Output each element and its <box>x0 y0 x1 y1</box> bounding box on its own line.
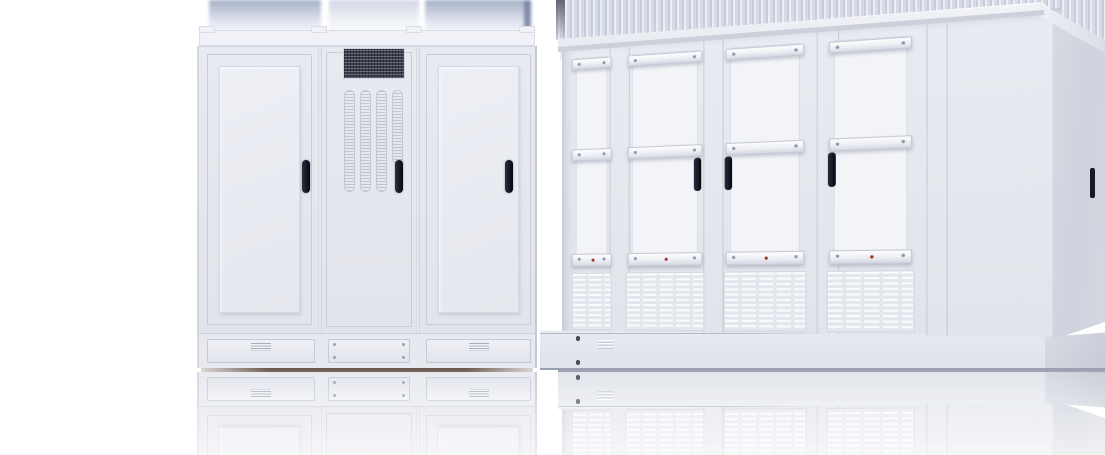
louver-panel <box>827 270 915 333</box>
indicator-dot <box>665 258 668 261</box>
louver-cluster <box>469 389 489 397</box>
door-seam <box>722 406 723 455</box>
slat-window-2 <box>632 50 698 266</box>
plinth-side-shading <box>1045 370 1105 416</box>
louver-plate <box>426 377 531 401</box>
louver-cluster <box>251 389 271 397</box>
plinth-vent-row <box>598 339 1019 349</box>
louver-panel <box>724 271 807 332</box>
plinth-vent <box>598 392 614 401</box>
cabinet-body <box>197 407 537 455</box>
background-smear-left <box>205 0 537 34</box>
door-stile <box>416 407 420 455</box>
louver-cluster <box>469 389 489 397</box>
louver-panel <box>572 273 612 331</box>
cabinet-front-face <box>562 402 1061 455</box>
plinth-vent <box>598 392 614 401</box>
plinth-vent <box>598 392 614 401</box>
screw <box>333 356 336 359</box>
louver-panel <box>827 407 915 455</box>
air-intake-mesh-grille <box>343 48 405 79</box>
left-door-panel <box>219 66 300 313</box>
louver-cluster <box>469 343 489 351</box>
base-vent-band <box>197 372 537 407</box>
cap-tab <box>199 26 215 33</box>
front-door-handle <box>828 152 836 187</box>
window-rail-bottom <box>829 249 912 264</box>
product-render-scene <box>0 0 1105 455</box>
door-stile <box>416 46 420 333</box>
vent-slot <box>344 90 355 192</box>
louver-cluster <box>469 389 489 397</box>
screw <box>402 394 405 397</box>
window-rail-bottom <box>628 252 703 266</box>
slat-window-3 <box>730 43 800 264</box>
louver-cluster <box>469 389 489 397</box>
cabinet-side-panel <box>1047 16 1105 340</box>
louver-cluster-grid <box>210 380 312 398</box>
screw <box>402 356 405 359</box>
plinth-vent <box>598 392 614 401</box>
door-seam <box>926 404 927 455</box>
louver-plate <box>207 377 315 401</box>
vent-slot <box>376 90 387 192</box>
left-cabinet-reflection <box>197 370 537 455</box>
right-door-handle <box>505 160 513 193</box>
window-rail-top <box>572 57 612 71</box>
louver-plate <box>207 339 315 363</box>
ground-contact-line <box>201 370 533 372</box>
door-seam <box>817 27 818 336</box>
louver-panel <box>724 408 807 455</box>
door-seam <box>947 404 948 455</box>
cap-tab <box>311 26 327 33</box>
slat-group <box>581 63 603 259</box>
door-seam <box>838 405 839 455</box>
plinth-seam <box>540 406 1046 407</box>
indicator-dot <box>870 255 873 258</box>
window-rail-bottom <box>572 253 612 267</box>
front-door-handle <box>725 156 732 190</box>
center-column-groove <box>326 413 412 455</box>
plinth-latch <box>576 399 580 404</box>
front-door-handle <box>694 158 701 191</box>
plinth-ground-line <box>540 368 1105 370</box>
door-seam <box>703 406 704 455</box>
vent-slot <box>360 90 371 192</box>
door-stile <box>318 407 322 455</box>
plinth-latch <box>576 360 580 365</box>
cap-tab <box>406 26 422 33</box>
window-rail-bottom <box>726 251 805 266</box>
louver-panel <box>572 410 612 455</box>
plinth-vent <box>598 392 614 401</box>
cabinet-top-cap <box>199 30 535 46</box>
window-rail-middle <box>572 148 612 162</box>
plinth-ground-line <box>540 370 1105 372</box>
door-seam <box>629 406 630 455</box>
left-door-groove <box>207 415 312 455</box>
cap-tab <box>519 26 535 33</box>
louver-panel <box>626 409 705 455</box>
cabinet-plinth <box>540 370 1105 416</box>
side-door-handle <box>1090 168 1095 198</box>
louver-panel <box>626 272 705 331</box>
plinth-vent <box>598 340 614 349</box>
louver-cluster <box>251 389 271 397</box>
right-cabinet-reflection <box>558 370 1105 455</box>
louver-cluster-grid <box>429 380 528 398</box>
door-seam <box>926 19 927 336</box>
louver-cluster <box>251 389 271 397</box>
smear-block <box>209 0 321 34</box>
louver-cluster <box>469 389 489 397</box>
door-stile <box>318 46 322 333</box>
left-door-panel <box>219 427 300 455</box>
louver-plate <box>426 339 531 363</box>
louver-cluster-grid <box>210 342 312 360</box>
louver-cluster <box>251 389 271 397</box>
right-door-panel <box>438 427 519 455</box>
screw <box>402 343 405 346</box>
center-door-handle <box>395 160 403 193</box>
ground-contact-line <box>201 368 533 370</box>
indicator-dot <box>765 257 768 260</box>
louver-cluster <box>251 389 271 397</box>
vent-slot <box>392 90 403 164</box>
left-door-handle <box>302 160 310 193</box>
louver-cluster-grid <box>429 342 528 360</box>
louver-cluster <box>469 389 489 397</box>
plinth-latch <box>576 375 580 380</box>
louver-cluster <box>251 389 271 397</box>
screw <box>402 381 405 384</box>
plinth-latch <box>576 336 580 341</box>
louver-cluster <box>469 389 489 397</box>
cover-plate <box>328 377 410 401</box>
left-cabinet <box>197 30 537 370</box>
louver-cluster <box>251 389 271 397</box>
louver-cluster <box>251 343 271 351</box>
right-cabinet <box>558 2 1105 370</box>
cabinet-body <box>197 46 537 333</box>
indicator-dot <box>592 259 595 262</box>
slat-window-4 <box>834 36 908 264</box>
door-seam <box>947 17 948 336</box>
louver-cluster <box>469 389 489 397</box>
right-door-groove <box>426 415 531 455</box>
cabinet-side-panel <box>1047 400 1105 455</box>
plinth-vent-row <box>598 391 1019 401</box>
plinth-vent <box>598 392 614 401</box>
smear-block <box>425 0 531 34</box>
louver-cluster <box>251 389 271 397</box>
door-seam <box>817 405 818 455</box>
screw <box>333 394 336 397</box>
base-vent-band <box>197 333 537 368</box>
cover-plate <box>328 339 410 363</box>
screw <box>333 343 336 346</box>
screw <box>333 381 336 384</box>
door-seam <box>610 407 611 455</box>
slat-window-1 <box>576 56 608 266</box>
cabinet-front-face <box>562 8 1061 339</box>
plinth-vent <box>598 392 614 401</box>
